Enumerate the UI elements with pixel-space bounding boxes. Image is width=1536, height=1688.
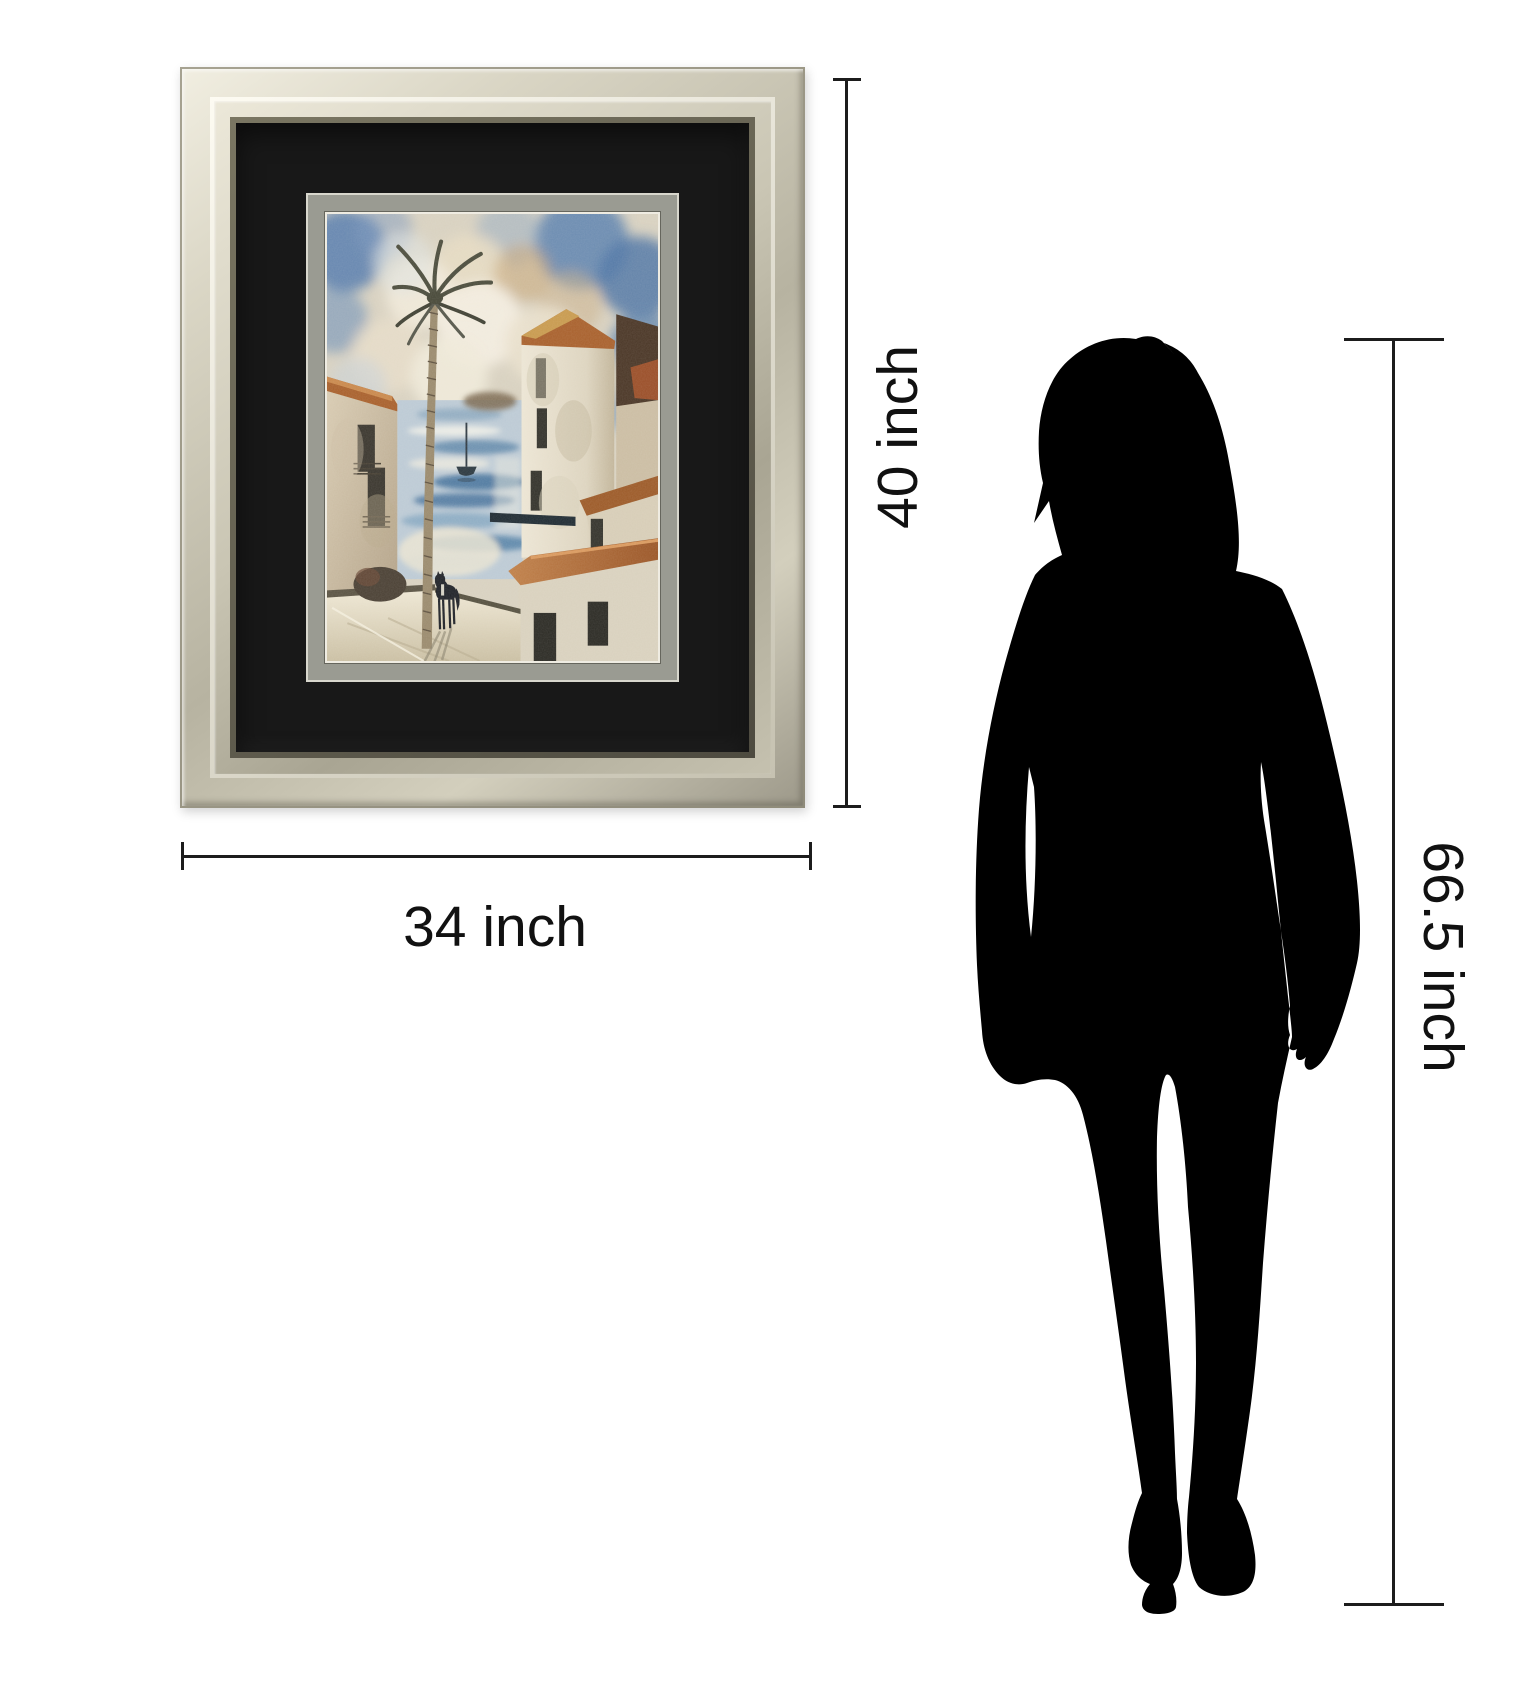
framed-artwork — [180, 67, 805, 808]
person-height-label: 66.5 inch — [1413, 747, 1473, 1167]
person-height-line — [1392, 338, 1395, 1606]
woman-silhouette — [930, 333, 1366, 1614]
frame-width-line — [181, 855, 812, 858]
frame-height-cap-bottom — [833, 805, 861, 808]
frame-width-cap-right — [809, 842, 812, 870]
frame-height-label: 40 inch — [868, 287, 928, 587]
frame-height-cap-top — [833, 78, 861, 81]
frame-width-cap-left — [181, 842, 184, 870]
person-height-cap-top — [1344, 338, 1444, 341]
canvas-texture — [327, 214, 658, 661]
painting-art — [327, 214, 658, 661]
person-height-cap-bottom — [1344, 1603, 1444, 1606]
painting-canvas — [325, 212, 660, 663]
frame-width-label: 34 inch — [345, 897, 645, 957]
frame-height-line — [845, 78, 848, 808]
